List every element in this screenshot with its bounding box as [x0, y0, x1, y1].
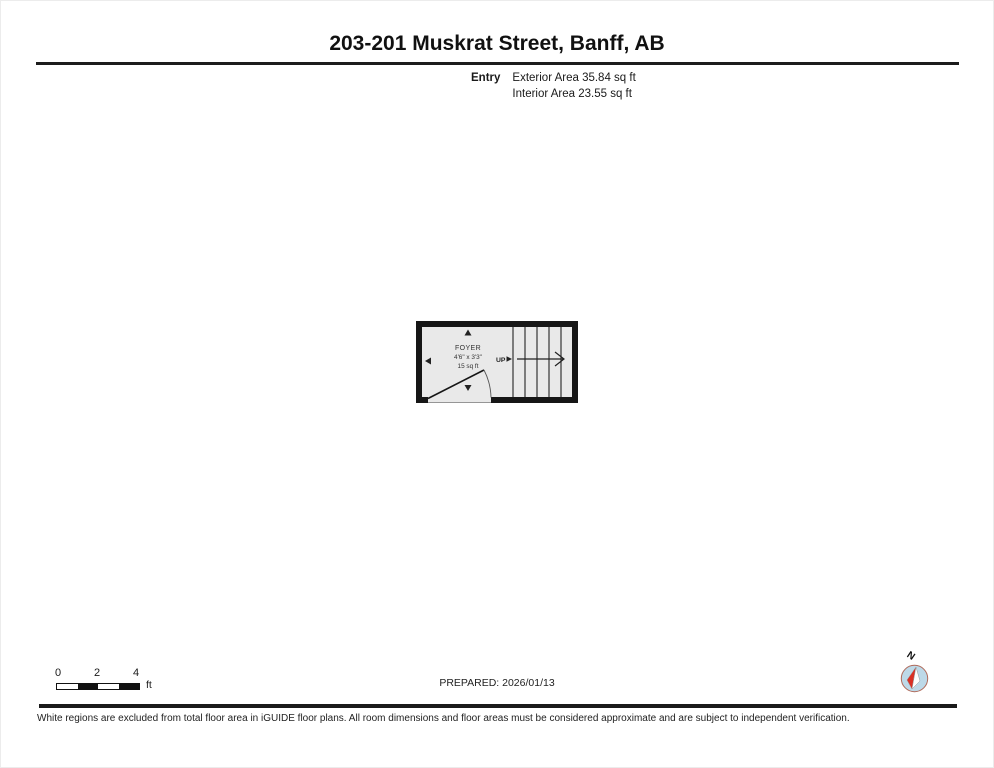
header-divider-line: [36, 62, 959, 65]
floor-name-label: Entry: [471, 70, 500, 102]
disclaimer-text: White regions are excluded from total fl…: [37, 713, 967, 724]
exterior-area-text: Exterior Area 35.84 sq ft: [512, 70, 635, 86]
prepared-date: PREPARED: 2026/01/13: [1, 677, 993, 689]
interior-area-text: Interior Area 23.55 sq ft: [512, 86, 635, 102]
room-name-label: FOYER: [455, 345, 481, 352]
floor-plan-drawing: UP FOYER 4'6" x 3'3" 15 sq ft: [416, 321, 578, 403]
room-dimensions-label: 4'6" x 3'3": [454, 354, 482, 361]
stairs-up-label: UP: [496, 357, 506, 364]
floor-area-legend: Entry Exterior Area 35.84 sq ft Interior…: [471, 70, 636, 102]
room-area-label: 15 sq ft: [458, 363, 479, 370]
compass-icon: N: [898, 645, 934, 697]
floor-plan-page: 203-201 Muskrat Street, Banff, AB Entry …: [0, 0, 994, 768]
footer-divider-line: [39, 704, 957, 708]
compass-north-label: N: [905, 650, 917, 663]
page-title: 203-201 Muskrat Street, Banff, AB: [1, 32, 993, 56]
